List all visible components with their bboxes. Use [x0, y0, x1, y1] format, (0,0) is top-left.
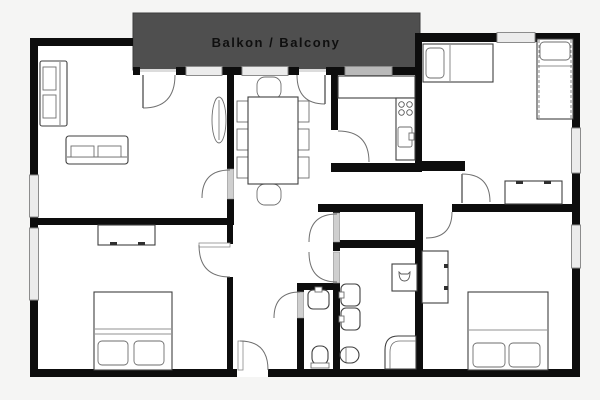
wall-bath-west — [333, 204, 340, 213]
wall-living-dining — [227, 67, 234, 169]
window-living-balcony — [186, 67, 222, 76]
kitchen-counter-top — [338, 76, 415, 98]
master-door-leaf — [199, 243, 230, 247]
dresser-knob — [516, 181, 523, 184]
shelf-unit-compartment — [43, 67, 56, 90]
dresser-knob — [110, 242, 117, 245]
wall-right-seg — [572, 268, 580, 377]
shelf-unit-compartment — [43, 95, 56, 118]
window-dining-balcony — [242, 67, 288, 76]
wc-sink-faucet — [315, 287, 322, 292]
wall-wc-west — [297, 318, 304, 370]
washing-machine — [392, 264, 417, 291]
dresser — [505, 181, 562, 204]
bed-pillow — [98, 341, 128, 365]
wall-balcony-seg — [133, 67, 140, 75]
bed-pillow — [540, 42, 570, 60]
sink-faucet — [339, 316, 344, 322]
wall-left-seg — [30, 38, 38, 175]
window-kitchen-balcony — [345, 67, 392, 76]
dining-chair-head — [257, 184, 281, 205]
living-door-leaf — [228, 169, 234, 199]
wall-balcony-seg — [176, 67, 186, 75]
wall-left-seg — [30, 300, 38, 377]
bed-pillow — [473, 343, 505, 367]
bath-door-leaf — [334, 252, 340, 283]
wall-master-east — [227, 225, 233, 244]
wall-master-east — [227, 277, 233, 370]
threshold-balcony-door-2 — [299, 69, 326, 72]
floor-plan-drawing: Balkon / Balcony — [0, 0, 600, 400]
window-bedroom2-right — [572, 225, 581, 268]
wall-living-bedroom — [30, 218, 233, 225]
wall-top-right-seg — [415, 33, 497, 42]
wall-bath-west — [333, 242, 340, 251]
balcony-label: Balkon / Balcony — [212, 35, 341, 50]
floor-plan-page: Balkon / Balcony — [0, 0, 600, 400]
dresser-knob — [544, 181, 551, 184]
dresser — [98, 225, 155, 245]
bed-pillow — [509, 343, 540, 367]
wall-kitchen-east — [415, 42, 422, 172]
wall-wc-west — [297, 283, 304, 292]
window-bedroom1-top — [497, 33, 535, 43]
kitchen-sink-faucet — [409, 133, 414, 140]
dresser-knob — [138, 242, 145, 245]
wc-sink — [308, 290, 329, 309]
wall-right-seg — [572, 173, 580, 225]
sofa-cushion — [98, 146, 121, 157]
threshold-balcony-door-1 — [140, 69, 176, 72]
wall-vestibule-north — [415, 161, 465, 171]
dining-chair-head — [257, 77, 281, 99]
bed-pillow — [134, 341, 164, 365]
window-living-left — [30, 175, 39, 217]
wardrobe — [422, 251, 448, 303]
dining-table — [248, 97, 298, 184]
wc-door-leaf — [298, 292, 304, 318]
sink-faucet — [339, 292, 344, 298]
entrance-door-leaf — [238, 341, 243, 370]
toilet — [340, 347, 359, 363]
wardrobe-handle — [444, 264, 448, 268]
wall-top-left — [30, 38, 133, 46]
wall-hall-south-east — [452, 204, 573, 212]
window-master-left — [30, 228, 39, 300]
bed-pillow — [426, 48, 444, 78]
wall-balcony-seg — [288, 67, 299, 75]
wall-kitchen-south — [331, 163, 422, 172]
wall-storage-south — [340, 240, 422, 248]
wc-toilet-cistern — [311, 363, 329, 368]
window-bedroom1-right — [572, 128, 581, 173]
sofa-cushion — [71, 146, 94, 157]
storage-door-leaf — [334, 213, 340, 242]
wc-toilet — [312, 346, 328, 365]
wardrobe-handle — [444, 286, 448, 290]
wall-kitchen-west — [331, 67, 338, 130]
